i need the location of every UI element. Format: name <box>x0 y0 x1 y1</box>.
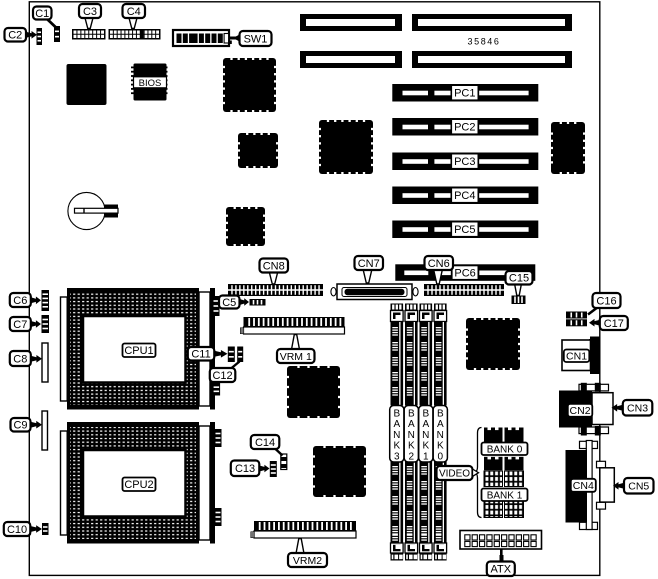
svg-text:CPU1: CPU1 <box>124 345 153 357</box>
svg-text:C14: C14 <box>255 437 275 449</box>
svg-text:C11: C11 <box>191 349 210 361</box>
svg-text:CN1: CN1 <box>566 351 587 363</box>
svg-text:B: B <box>408 409 415 420</box>
svg-text:K: K <box>408 441 415 452</box>
svg-text:A: A <box>422 419 429 430</box>
svg-text:2: 2 <box>409 451 415 462</box>
svg-text:C1: C1 <box>35 8 49 20</box>
svg-text:BIOS: BIOS <box>139 78 162 89</box>
svg-text:PC3: PC3 <box>454 156 475 168</box>
svg-text:CN4: CN4 <box>573 480 594 492</box>
svg-text:VRM2: VRM2 <box>293 555 322 567</box>
svg-text:K: K <box>437 441 444 452</box>
svg-text:VRM 1: VRM 1 <box>280 351 312 363</box>
svg-text:A: A <box>393 419 400 430</box>
svg-text:C6: C6 <box>13 295 27 307</box>
svg-text:K: K <box>422 441 429 452</box>
svg-text:CPU2: CPU2 <box>124 479 153 491</box>
svg-text:B: B <box>393 409 400 420</box>
svg-text:BANK 0: BANK 0 <box>487 444 523 455</box>
svg-text:C13: C13 <box>235 463 255 475</box>
svg-text:C5: C5 <box>222 297 236 309</box>
svg-text:C10: C10 <box>7 524 27 536</box>
svg-text:C12: C12 <box>212 370 232 382</box>
svg-text:0: 0 <box>438 451 444 462</box>
svg-text:C16: C16 <box>596 295 616 307</box>
svg-text:CN5: CN5 <box>628 481 649 493</box>
svg-text:C8: C8 <box>13 353 27 365</box>
svg-text:N: N <box>408 430 415 441</box>
svg-text:3: 3 <box>394 451 400 462</box>
svg-text:A: A <box>408 419 415 430</box>
svg-text:C15: C15 <box>509 273 529 285</box>
svg-text:C2: C2 <box>8 30 22 42</box>
svg-text:CN3: CN3 <box>627 403 648 415</box>
svg-text:C4: C4 <box>127 6 141 18</box>
svg-text:ATX: ATX <box>491 564 512 576</box>
svg-text:C7: C7 <box>13 319 27 331</box>
svg-text:K: K <box>393 441 400 452</box>
svg-text:CN7: CN7 <box>358 258 380 270</box>
svg-text:C3: C3 <box>83 6 97 18</box>
svg-text:N: N <box>422 430 429 441</box>
svg-text:BANK 1: BANK 1 <box>487 490 523 501</box>
svg-text:CN6: CN6 <box>428 258 450 270</box>
svg-text:PC5: PC5 <box>454 224 475 236</box>
svg-text:N: N <box>393 430 400 441</box>
svg-text:PC2: PC2 <box>454 121 475 133</box>
svg-text:PC6: PC6 <box>454 268 475 280</box>
svg-text:B: B <box>437 409 444 420</box>
svg-text:N: N <box>437 430 444 441</box>
svg-text:VIDEO: VIDEO <box>439 469 470 480</box>
svg-text:PC1: PC1 <box>454 87 475 99</box>
svg-text:SW1: SW1 <box>244 33 268 45</box>
svg-text:B: B <box>422 409 429 420</box>
svg-text:35846: 35846 <box>467 37 500 47</box>
svg-text:CN8: CN8 <box>263 260 285 272</box>
svg-text:C17: C17 <box>604 318 624 330</box>
svg-text:CN2: CN2 <box>570 405 591 417</box>
svg-text:C9: C9 <box>13 420 27 432</box>
svg-text:PC4: PC4 <box>454 190 475 202</box>
svg-text:A: A <box>437 419 444 430</box>
svg-text:1: 1 <box>423 451 429 462</box>
